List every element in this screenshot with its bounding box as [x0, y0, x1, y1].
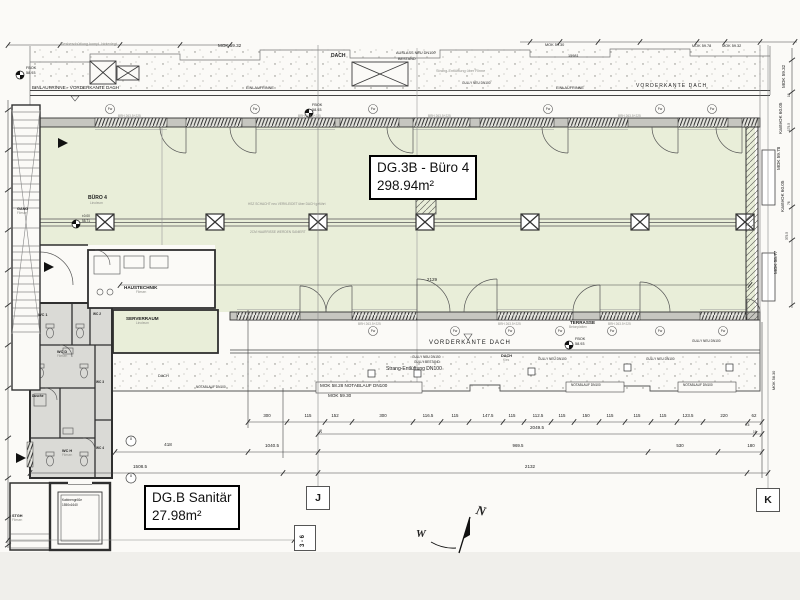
dim-row3-left: 1040.5 — [265, 443, 279, 448]
brh-note: BRH 263.5+225 — [608, 323, 631, 327]
riss-note: 2CM HAARRISSE WERDEN SANIERT — [250, 231, 306, 235]
window-marker: Fw — [104, 107, 116, 111]
level-mok-top-r1: MOK 59.78 — [692, 44, 711, 48]
gully-100-a: GULLY NEU DN100 — [538, 358, 567, 362]
buero-level-b: 58.71 — [82, 220, 90, 224]
gully-top-note: GULLY NEU DN100 — [462, 82, 491, 86]
einlaufrinne-mid: EINLAUFRINNE — [246, 86, 274, 90]
dim-label: 300 — [263, 413, 270, 418]
dim-label: 115 — [634, 413, 641, 418]
room-wc3-name: WC 3 — [96, 381, 104, 385]
roof-micro-note: Kiesbeschüttung kompl. hinterlegt — [60, 42, 117, 46]
dim-label: 147.5 — [483, 413, 494, 418]
dim-15085: 1508.5 — [133, 464, 147, 469]
vorderkante-bottom: VORDERKANTE DACH — [429, 340, 511, 347]
room-haustechnik-sub: Fliesen — [136, 291, 146, 295]
room-stgh-sub: Fliesen — [12, 519, 22, 523]
main-area-size: 298.94m² — [377, 177, 469, 195]
floorplan-linework — [0, 0, 800, 600]
dim-row2-total: 2049.5 — [530, 425, 544, 430]
dim-label: 62 — [752, 413, 757, 418]
level-mok-5978: MOK 59.78 — [776, 147, 781, 170]
window-marker: Fw — [249, 107, 261, 111]
window-marker: Fw — [554, 329, 566, 333]
schacht-note: HSZ SCHACHT neu VERKLEIDET über DACH gef… — [248, 203, 325, 207]
dim-row2-a: 6.5 — [745, 424, 749, 428]
dim-label: 152 — [331, 413, 338, 418]
window-marker: Fw — [717, 329, 729, 333]
window-marker: Fw — [504, 329, 516, 333]
room-buero4-sub: Linoleum — [90, 202, 103, 206]
main-area-name: DG.3B - Büro 4 — [377, 159, 469, 177]
vorderkante-top-right: VORDERKANTE DACH — [636, 84, 707, 90]
vorderkante-top-left: EINLAUFRINNE - VORDERKANTE DACH — [32, 85, 119, 90]
gully-100-c: GULLY NEU DN100 — [692, 340, 721, 344]
room-wc4-name: WC 4 — [96, 447, 104, 451]
level-mok-5930: MOK 59.30 — [328, 393, 351, 398]
dim-label: 115 — [660, 413, 667, 418]
dim-label: 180 — [747, 443, 754, 448]
rdim-3795: 379.5 — [786, 232, 790, 240]
haustechnik-room — [88, 250, 215, 308]
brh-note: BRH 263.5+225 — [298, 115, 321, 119]
dach-top-label: DACH — [331, 54, 345, 60]
strang-rinne-note: Strang-Entlüftung über Rinne — [436, 69, 485, 73]
room-wcd-sub: Fliesen — [57, 355, 67, 359]
rdim-16: 16 — [788, 93, 792, 97]
level-mok-top-mid: MOK 59.30 — [545, 43, 564, 47]
room-gang-sub: Fliesen — [17, 212, 27, 216]
dim-label: 150 — [582, 413, 589, 418]
room-wc1-name: WC 1 — [38, 313, 48, 317]
dim-label: 115 — [509, 413, 516, 418]
level-mok-top-r2: MOK 59.32 — [722, 44, 741, 48]
compass-west-label: W — [416, 528, 426, 541]
dim-label: 530 — [676, 443, 683, 448]
window-marker: Fw — [654, 107, 666, 111]
room-dusche-name: Dusche — [32, 395, 44, 399]
room-serverraum-sub: Linoleum — [136, 322, 149, 326]
mok-right-vertical: MOK 59.32 — [781, 65, 786, 88]
brh-note: BRH 263.5+225 — [358, 323, 381, 327]
top-total-dim: 15981 — [568, 54, 579, 58]
notablauf-b: NOTABLAUF DN100 — [683, 384, 713, 388]
strang-dn100-note: Strang-Entlüftung DN100 — [386, 367, 442, 373]
terrasse-sub: Betonplatten — [569, 326, 587, 330]
notablauf-a: NOTABLAUF DN100 — [571, 384, 601, 388]
brh-note: BRH 263.5+225 — [498, 323, 521, 327]
fbok-terr-label: FBOK — [575, 337, 585, 341]
window-marker: Fw — [367, 329, 379, 333]
dim-label: 115 — [607, 413, 614, 418]
fbok-tl-value: 58.93 — [26, 71, 36, 75]
gully-bestand-note: GULLY BESTAND — [414, 361, 440, 365]
dim-label: 116.5 — [423, 413, 434, 418]
rdim-76: 76 — [788, 201, 792, 205]
dach-left-label: DACH — [158, 374, 169, 378]
pos-bubble-a: 8 — [130, 438, 132, 442]
bestand-note: BESTAND — [398, 57, 416, 61]
fbok-terr-value: 58.93 — [575, 342, 585, 346]
room-wc2-name: WC 2 — [93, 313, 101, 317]
dim-label: 112.5 — [533, 413, 544, 418]
dim-label: 115 — [559, 413, 566, 418]
level-mok-top-left: MOK 59.32 — [218, 43, 241, 48]
window-marker: Fw — [606, 329, 618, 333]
rdim-1795: 179.5 — [788, 123, 792, 131]
level-kante1: KanteOK 60.05 — [778, 103, 783, 134]
elevator-cabin-line2: 1550x1640 — [62, 504, 78, 508]
dim-row2-b: 16 — [753, 431, 757, 435]
stair-block — [12, 105, 40, 390]
grid-axis-3-6: 3 - 6 — [294, 525, 316, 551]
sanitaer-area-name: DG.B Sanitär — [152, 489, 232, 507]
room-width-dim: 2129 — [427, 277, 437, 282]
window-marker: Fw — [706, 107, 718, 111]
dim-label: 969.5 — [513, 443, 524, 448]
dim-row4-total: 2132 — [525, 464, 535, 469]
brh-note: BRH 263.5+225 — [118, 115, 141, 119]
dach-area-sub: Kies — [503, 359, 509, 363]
grid-bubble-j: J — [306, 486, 330, 510]
dim-label: 115 — [452, 413, 459, 418]
grid-axis-label: 3 - 6 — [300, 535, 306, 547]
brh-note: BRH 263.5+225 — [618, 115, 641, 119]
brh-note: BRH 263.5+225 — [428, 115, 451, 119]
pos-bubble-b: 8 — [130, 475, 132, 479]
dim-label: 220 — [720, 413, 727, 418]
main-area-label: DG.3B - Büro 4 298.94m² — [369, 155, 477, 200]
sanitaer-area-label: DG.B Sanitär 27.98m² — [144, 485, 240, 530]
window-marker: Fw — [654, 329, 666, 333]
window-marker: Fw — [367, 107, 379, 111]
sanitaer-area-size: 27.98m² — [152, 507, 232, 525]
floor-plan-sheet: Kiesbeschüttung kompl. hinterlegt MOK 59… — [0, 0, 800, 600]
dim-label: 123.5 — [683, 413, 694, 418]
gully-100-b: GULLY NEU DN100 — [646, 358, 675, 362]
level-mok-5877: MOK 58.77 — [773, 251, 778, 274]
auslass-note: AUSLASS NEU DN100 — [396, 51, 435, 55]
mok-notablauf: MOK 58.28 NOTABLAUF DN100 — [320, 383, 387, 388]
window-marker: Fw — [449, 329, 461, 333]
dim-row2-small: 28 — [320, 429, 324, 433]
notablauf-c: NOTABLAUF DN100 — [196, 386, 226, 390]
dim-418: 418 — [164, 442, 172, 447]
dim-label: 115 — [305, 413, 312, 418]
level-mok-5830: MOK 58.30 — [772, 371, 776, 390]
einlaufrinne-right: EINLAUFRINNE — [556, 86, 584, 90]
sheet-margin-strip — [0, 552, 800, 600]
dim-label: 300 — [379, 413, 386, 418]
room-wch-sub: Fliesen — [62, 454, 72, 458]
window-marker: Fw — [542, 107, 554, 111]
grid-bubble-k: K — [756, 488, 780, 512]
fbok-mid-label: FBOK — [312, 103, 322, 107]
fbok-mid-value: 58.93 — [312, 108, 322, 112]
fbok-tl-label: FBOK — [26, 66, 36, 70]
level-kante2: KanteOK 60.05 — [780, 181, 785, 212]
